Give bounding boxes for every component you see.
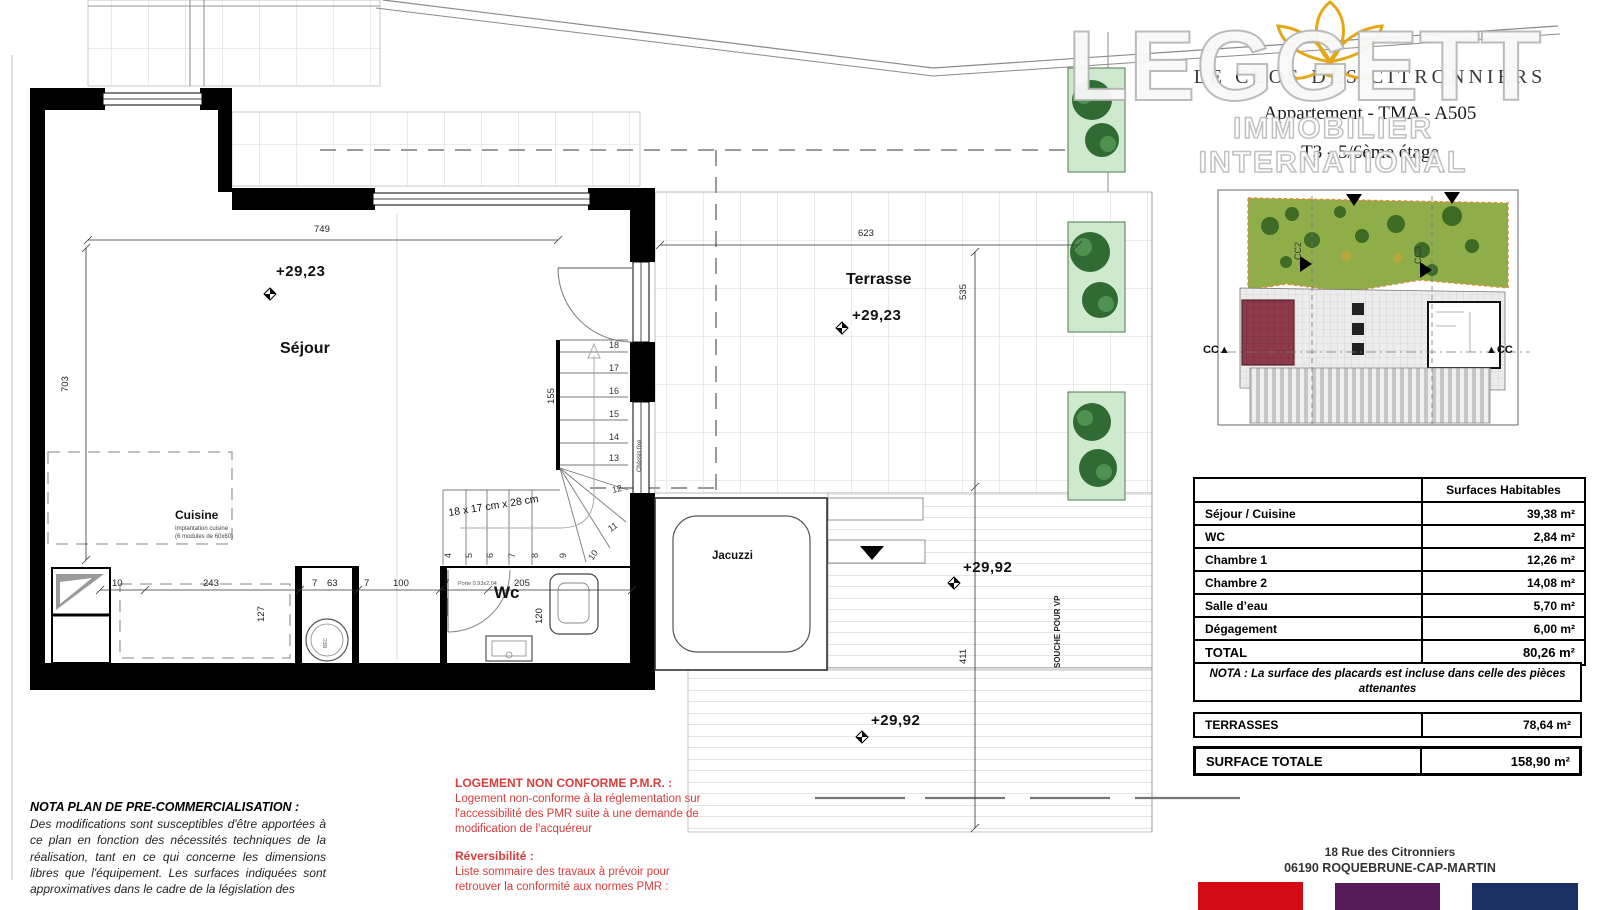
total-label: TOTAL: [1195, 641, 1423, 664]
terrasses-label: TERRASSES: [1195, 714, 1423, 736]
table-header-row: Surfaces Habitables: [1195, 479, 1584, 501]
dim-wc-depth: 120: [534, 608, 545, 624]
stair-num-4: 4: [443, 553, 453, 558]
souche-label: SOUCHE POUR VP: [1053, 596, 1062, 668]
surfaces-table: Surfaces Habitables Séjour / Cuisine 39,…: [1193, 477, 1586, 666]
level-sejour: +29,23: [276, 263, 325, 280]
table-row: WC 2,84 m²: [1195, 524, 1584, 547]
row-value: 39,38 m²: [1423, 503, 1584, 524]
dim-chain-7c: 7: [444, 578, 449, 589]
room-sejour: Séjour: [280, 340, 330, 358]
pmr-reversibilite-body: Liste sommaire des travaux à prévoir pou…: [455, 865, 707, 895]
dim-chain-100: 100: [393, 578, 409, 589]
dim-chain-7a: 7: [312, 578, 317, 589]
surface-totale-label: SURFACE TOTALE: [1196, 749, 1422, 773]
table-row: Chambre 2 14,08 m²: [1195, 570, 1584, 593]
stair-num-16: 16: [609, 386, 619, 396]
row-label: Chambre 2: [1195, 572, 1423, 593]
water-heater-label: BEC: [323, 638, 329, 648]
brand-swatch-purple: [1335, 883, 1440, 910]
cuisine-note-1: Implantation cuisine: [175, 526, 228, 532]
dim-top: 749: [314, 224, 330, 235]
leggett-watermark: LEGGETT: [1005, 16, 1605, 115]
chassis-fixe-label: Châssis fixe: [637, 440, 643, 472]
door-size-label: Porte 0.93x2.04: [458, 581, 497, 587]
row-value: 2,84 m²: [1423, 526, 1584, 547]
pmr-title: LOGEMENT NON CONFORME P.M.R. :: [455, 776, 707, 790]
room-jacuzzi: Jacuzzi: [712, 550, 753, 562]
dim-stair-width: 155: [546, 388, 557, 404]
leggett-tagline-watermark: IMMOBILIER INTERNATIONAL: [1108, 112, 1558, 180]
nota-placards-text: NOTA : La surface des placards est inclu…: [1195, 667, 1580, 697]
row-value: 14,08 m²: [1423, 572, 1584, 593]
dim-chain-10: 10: [112, 578, 123, 589]
surface-totale-value: 158,90 m²: [1422, 754, 1579, 769]
dim-chain-63: 63: [327, 578, 338, 589]
pmr-body: Logement non-conforme à la réglementatio…: [455, 792, 707, 837]
level-terrasse: +29,23: [852, 307, 901, 324]
address-line-2: 06190 ROQUEBRUNE-CAP-MARTIN: [1205, 861, 1575, 875]
cuisine-note-2: (6 modules de 60x60): [175, 534, 233, 540]
stair-num-12: 12: [611, 483, 623, 495]
stair-num-15: 15: [609, 409, 619, 419]
floor-plan-page: +29,23 Séjour Cuisine Implantation cuisi…: [0, 0, 1617, 910]
minimap-cc3-label: CC3: [1413, 246, 1423, 264]
brand-swatch-red: [1198, 882, 1303, 910]
dim-deck-depth: 411: [958, 649, 969, 664]
minimap-cc-right-label: ▲CC: [1486, 344, 1513, 356]
stair-num-7: 7: [507, 553, 517, 558]
stair-num-13: 13: [609, 453, 619, 463]
stair-num-9: 9: [558, 553, 568, 558]
terrasses-box: TERRASSES 78,64 m²: [1193, 712, 1582, 738]
pmr-reversibilite-title: Réversibilité :: [455, 849, 707, 863]
stair-num-17: 17: [609, 363, 619, 373]
stair-num-5: 5: [464, 553, 474, 558]
stair-num-14: 14: [609, 432, 619, 442]
row-label: Chambre 1: [1195, 549, 1423, 570]
table-header-surfaces: Surfaces Habitables: [1423, 479, 1584, 501]
pre-commercialisation-body: Des modifications sont susceptibles d'êt…: [30, 816, 326, 898]
dim-terrasse-depth: 535: [958, 284, 969, 300]
table-row: Séjour / Cuisine 39,38 m²: [1195, 501, 1584, 524]
minimap-cc2-label: CC2: [1293, 242, 1303, 260]
table-row: Salle d’eau 5,70 m²: [1195, 593, 1584, 616]
surface-totale-box: SURFACE TOTALE 158,90 m²: [1193, 746, 1582, 776]
minimap-cc-left-label: CC▲: [1203, 344, 1230, 356]
level-deck-upper: +29,92: [963, 559, 1012, 576]
table-row: Chambre 1 12,26 m²: [1195, 547, 1584, 570]
row-label: WC: [1195, 526, 1423, 547]
row-label: Séjour / Cuisine: [1195, 503, 1423, 524]
table-total-row: TOTAL 80,26 m²: [1195, 639, 1584, 664]
dim-chain-7b: 7: [364, 578, 369, 589]
row-value: 5,70 m²: [1423, 595, 1584, 616]
dim-chain-205: 205: [514, 578, 530, 589]
table-header-empty: [1195, 479, 1423, 501]
dim-left: 703: [60, 376, 71, 392]
brand-swatch-navy: [1472, 883, 1578, 910]
dim-chain-243: 243: [203, 578, 219, 589]
dim-terrasse-width: 623: [858, 228, 874, 239]
row-value: 6,00 m²: [1423, 618, 1584, 639]
pre-commercialisation-title: NOTA PLAN DE PRE-COMMERCIALISATION :: [30, 800, 326, 814]
stair-num-18: 18: [609, 340, 619, 350]
pmr-note: LOGEMENT NON CONFORME P.M.R. : Logement …: [455, 776, 707, 895]
room-cuisine: Cuisine: [175, 508, 218, 522]
dim-kitchen-depth: 127: [256, 606, 267, 622]
row-label: Dégagement: [1195, 618, 1423, 639]
room-terrasse: Terrasse: [846, 271, 912, 289]
address-line-1: 18 Rue des Citronniers: [1205, 845, 1575, 859]
table-row: Dégagement 6,00 m²: [1195, 616, 1584, 639]
terrasses-value: 78,64 m²: [1423, 718, 1580, 732]
stair-num-8: 8: [530, 553, 540, 558]
row-label: Salle d’eau: [1195, 595, 1423, 616]
nota-placards-box: NOTA : La surface des placards est inclu…: [1193, 662, 1582, 702]
row-value: 12,26 m²: [1423, 549, 1584, 570]
pre-commercialisation-note: NOTA PLAN DE PRE-COMMERCIALISATION : Des…: [30, 800, 326, 898]
level-deck-lower: +29,92: [871, 712, 920, 729]
site-minimap: [1206, 190, 1540, 425]
total-value: 80,26 m²: [1423, 641, 1584, 664]
stair-num-6: 6: [485, 553, 495, 558]
